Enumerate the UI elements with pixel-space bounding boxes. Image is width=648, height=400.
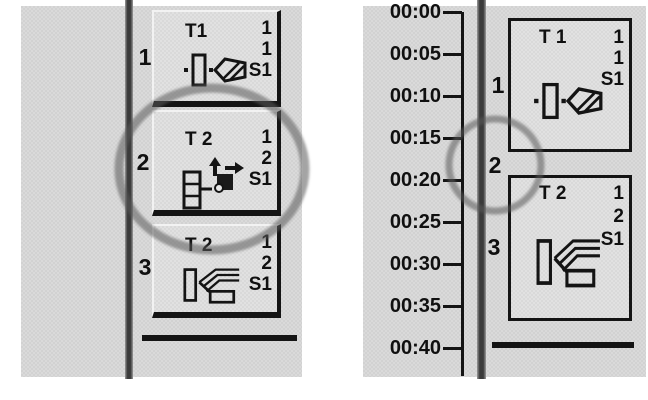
step-values: 1 1 S1 [249, 18, 272, 81]
time-label: 00:05 [368, 43, 441, 65]
time-label: 00:15 [368, 127, 441, 149]
step-values: 1 2 S1 [601, 182, 624, 251]
step-value-1: 1 [601, 182, 624, 205]
sequence-step-block[interactable]: T 2 1 2 S1 [152, 224, 281, 318]
step-value-2: 1 [601, 48, 624, 69]
step-source: S1 [601, 228, 624, 251]
sequence-step-block[interactable]: T 2 1 2 S1 [152, 110, 281, 216]
time-tick [443, 11, 462, 14]
step-name: T 2 [539, 184, 566, 203]
step-number: 1 [137, 46, 153, 68]
step-values: 1 2 S1 [249, 232, 272, 295]
step-name: T1 [185, 22, 207, 41]
time-tick [443, 263, 462, 266]
time-label: 00:10 [368, 85, 441, 107]
time-label: 00:40 [368, 337, 441, 359]
step-name: T 2 [185, 130, 212, 149]
step-number: 1 [490, 74, 506, 96]
step-values: 1 1 S1 [601, 27, 624, 90]
step-source: S1 [249, 60, 272, 81]
time-label: 00:30 [368, 253, 441, 275]
step-number: 2 [487, 154, 503, 176]
step-number: 2 [135, 151, 151, 173]
step-name: T 1 [539, 28, 566, 47]
left-panel-divider-line [125, 0, 133, 379]
time-label: 00:00 [368, 1, 441, 23]
transfer-step-icon [180, 156, 246, 210]
bottom-bar [492, 342, 634, 348]
step-value-1: 1 [601, 27, 624, 48]
time-axis [461, 12, 464, 376]
step-value-2: 2 [601, 205, 624, 228]
time-tick [443, 95, 462, 98]
step-value-1: 1 [249, 232, 272, 253]
time-tick [443, 221, 462, 224]
step-source: S1 [249, 274, 272, 295]
sequence-step-block[interactable]: T1 1 1 S1 [152, 10, 281, 107]
ramp-step-icon [536, 236, 602, 288]
bottom-bar [142, 335, 297, 341]
step-number: 3 [486, 236, 502, 258]
sequence-step-block[interactable]: T 2 1 2 S1 [508, 175, 632, 321]
screenshot-root: 1 2 3 T1 1 1 S1 T 2 1 2 S1 [0, 0, 648, 400]
step-value-2: 1 [249, 39, 272, 60]
ramp-step-icon [183, 264, 241, 306]
time-label: 00:35 [368, 295, 441, 317]
right-panel-divider-line [477, 0, 486, 379]
time-label: 00:25 [368, 211, 441, 233]
step-value-1: 1 [249, 127, 272, 148]
step-value-2: 2 [249, 148, 272, 169]
time-tick [443, 137, 462, 140]
step-name: T 2 [185, 236, 212, 255]
step-values: 1 2 S1 [249, 127, 272, 190]
step-number: 3 [137, 256, 153, 278]
sequence-step-block[interactable]: T 1 1 1 S1 [508, 18, 632, 152]
step-value-1: 1 [249, 18, 272, 39]
valve-step-icon [533, 81, 603, 121]
step-source: S1 [249, 169, 272, 190]
time-tick [443, 347, 462, 350]
step-value-2: 2 [249, 253, 272, 274]
time-tick [443, 53, 462, 56]
valve-step-icon [183, 52, 247, 88]
step-source: S1 [601, 69, 624, 90]
time-tick [443, 305, 462, 308]
time-tick [443, 179, 462, 182]
time-label: 00:20 [368, 169, 441, 191]
